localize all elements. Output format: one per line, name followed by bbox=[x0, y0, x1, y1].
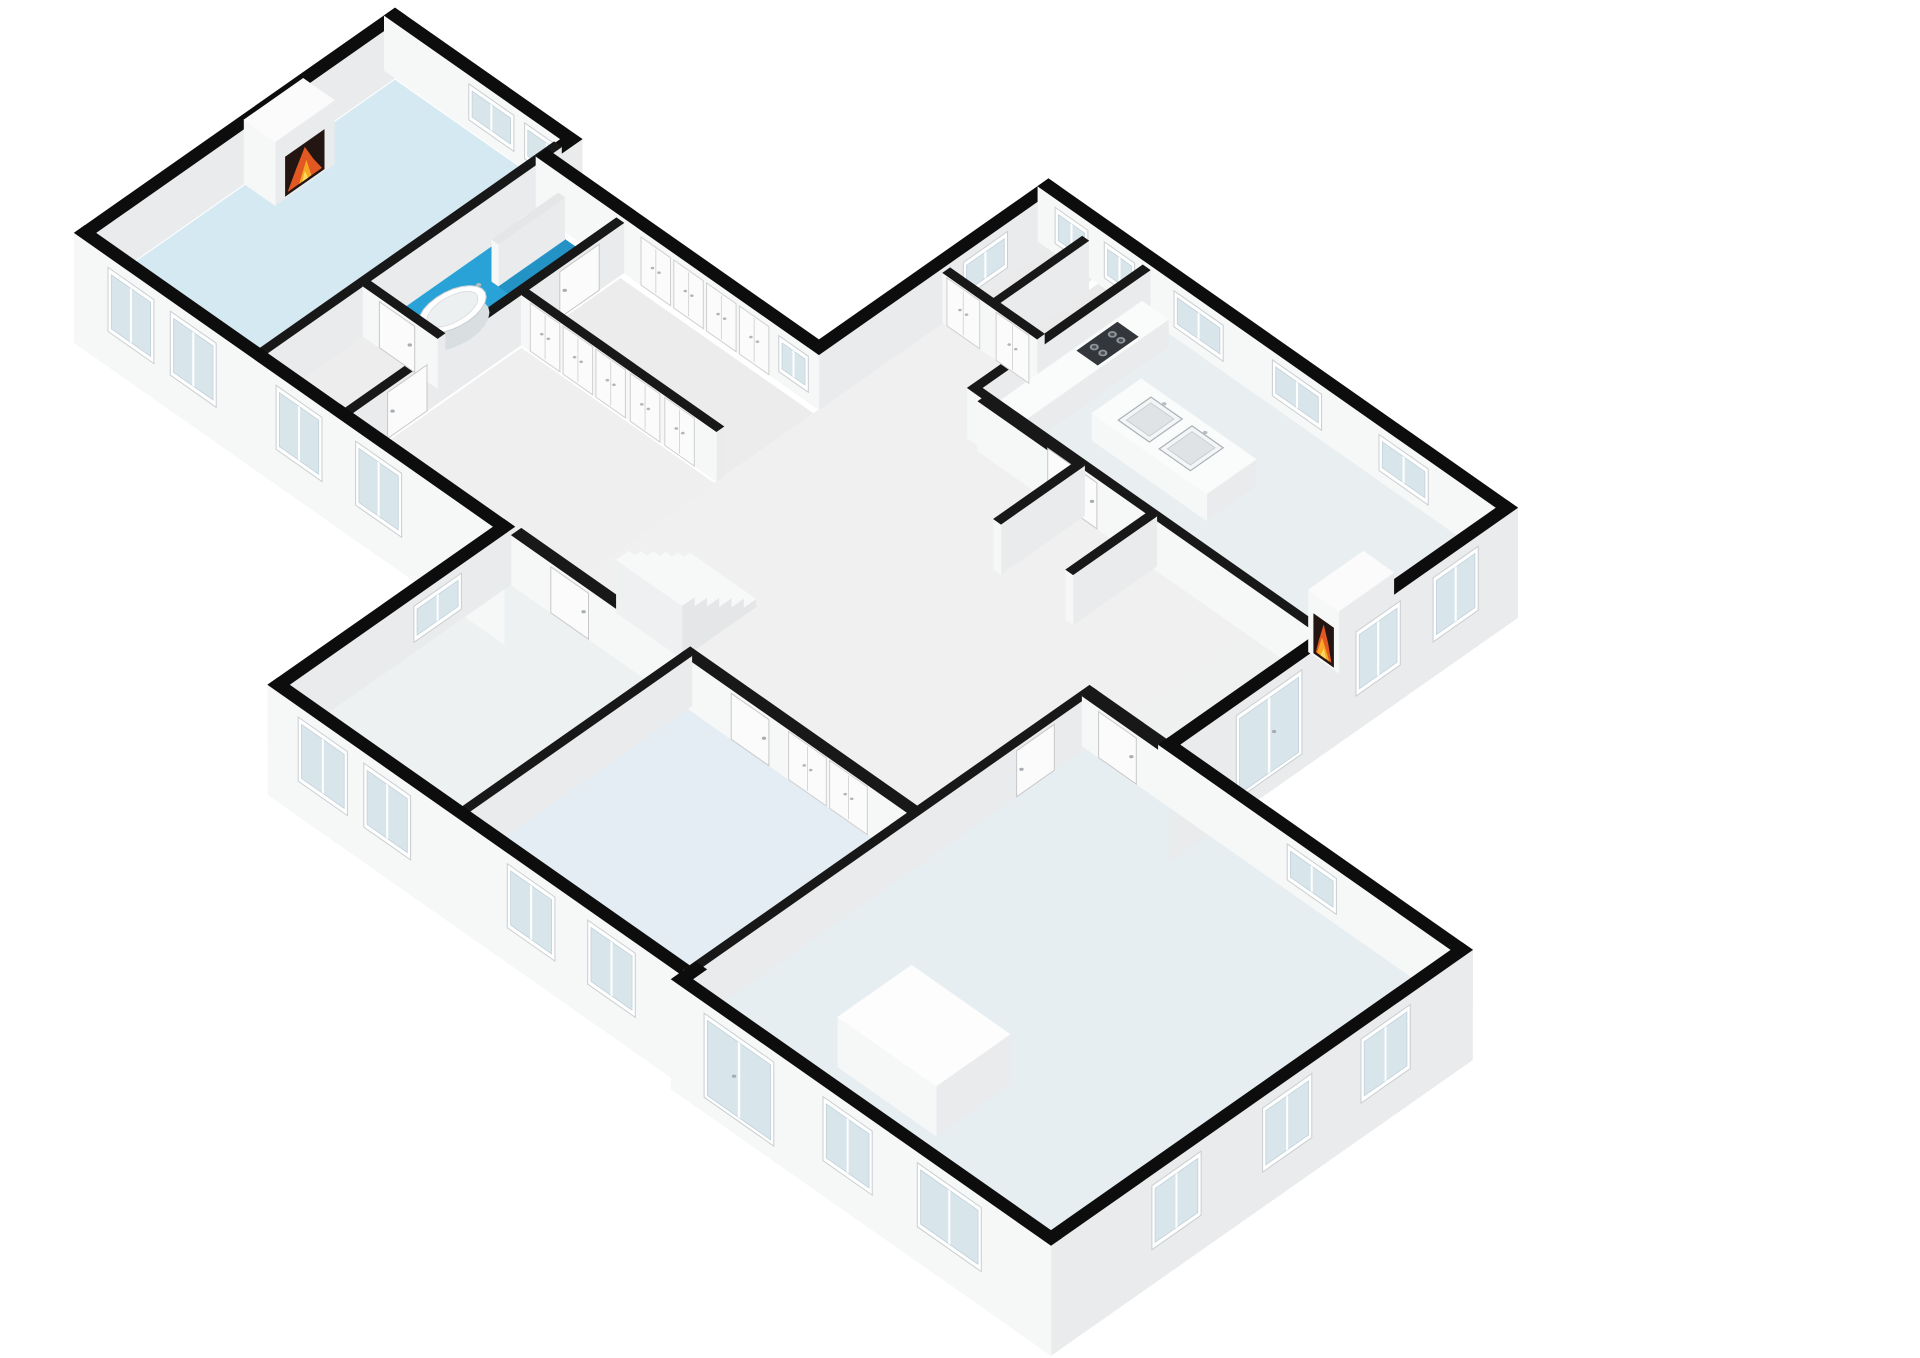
wardrobe-a1-handle bbox=[657, 271, 661, 274]
win-bottomleft-sw-1-mullion bbox=[322, 739, 324, 794]
storage-door-1-handle bbox=[958, 309, 962, 312]
bathtub-faucet bbox=[476, 283, 481, 287]
storage-door-1-handle bbox=[965, 313, 969, 316]
door-lobby-handle bbox=[390, 409, 394, 412]
wardrobe-a2-handle bbox=[690, 294, 694, 297]
win-bottomleft-sw-2-mullion bbox=[386, 784, 388, 839]
frenchdoor-bedmain-sw-handle bbox=[732, 1075, 736, 1078]
win-bedmain-se-3-mullion bbox=[1176, 1173, 1178, 1228]
win-kitchen-se-2-mullion bbox=[1377, 621, 1379, 676]
glassdoor-kitchen-se-divider bbox=[1268, 697, 1270, 774]
stove-4-burners-burner-center bbox=[1119, 339, 1123, 342]
floorplan-3d-svg bbox=[0, 0, 1920, 1358]
win-storage-w-mullion bbox=[984, 251, 986, 278]
stove-4-burners-burner-center bbox=[1092, 345, 1096, 348]
staircase-tread-face-se bbox=[694, 598, 706, 651]
door-living-handle bbox=[563, 289, 567, 292]
wardrobe-a1-handle bbox=[651, 267, 655, 270]
wardrobe-b2-handle bbox=[573, 356, 577, 359]
wardrobe-b3-handle bbox=[606, 379, 610, 382]
wardrobe-b3-divider bbox=[610, 361, 611, 406]
wardrobe-a2-handle bbox=[683, 290, 687, 293]
wall-int-hall-stub-2-face-sw bbox=[994, 519, 1001, 574]
island-sink-2-faucet bbox=[1203, 431, 1208, 434]
win-corridor-ne-mullion bbox=[793, 350, 795, 377]
win-bedmain-sw-2-mullion bbox=[948, 1190, 950, 1245]
win-living-sw-2-mullion bbox=[192, 332, 194, 387]
win-bedmain-se-2-mullion bbox=[1286, 1095, 1288, 1150]
door-bedroom-main-w-handle bbox=[1019, 768, 1023, 771]
wardrobe-b1-handle bbox=[540, 333, 544, 336]
door-kitchen-handle bbox=[1090, 500, 1094, 503]
wall-int-kitchen-nw-face-sw bbox=[967, 388, 974, 443]
storage-door-2-handle bbox=[1007, 343, 1011, 346]
wardrobe-b1-divider bbox=[545, 315, 546, 360]
door-bathroom-handle bbox=[408, 343, 412, 346]
closet-bedmid-1-divider bbox=[807, 746, 808, 791]
win-bedmain-se-1-mullion bbox=[1385, 1026, 1387, 1081]
door-room-bottom-left-handle bbox=[581, 610, 585, 613]
win-bedmid-sw-2-mullion bbox=[611, 941, 613, 996]
win-kitchen-se-1-mullion bbox=[1455, 566, 1457, 621]
wall-ext-main-nw-face-sw bbox=[808, 347, 819, 410]
win-kitchen-ne-2-mullion bbox=[1296, 381, 1298, 408]
closet-bedmid-2-divider bbox=[848, 775, 849, 820]
wardrobe-a3-handle bbox=[723, 317, 727, 320]
stove-4-burners-burner-center bbox=[1101, 351, 1105, 354]
wardrobe-b1-handle bbox=[547, 337, 551, 340]
win-entry-sw-mullion bbox=[378, 462, 380, 517]
wardrobe-b4-handle bbox=[647, 408, 651, 411]
wardrobe-a1-divider bbox=[655, 249, 656, 294]
win-bedmain-ne-mullion bbox=[1311, 866, 1313, 893]
wardrobe-b2-divider bbox=[577, 338, 578, 383]
wall-int-corr-hall-face-se bbox=[716, 427, 723, 482]
win-kitchen-ne-3-mullion bbox=[1403, 456, 1405, 483]
closet-bedmid-2-handle bbox=[850, 797, 854, 800]
storage-door-2-handle bbox=[1014, 348, 1018, 351]
wardrobe-b5-divider bbox=[679, 409, 680, 454]
closet-bedmid-1-handle bbox=[802, 764, 806, 767]
wardrobe-b2-handle bbox=[579, 360, 583, 363]
wardrobe-a4-handle bbox=[749, 336, 753, 339]
door-bedroom-middle-handle bbox=[762, 737, 766, 740]
wardrobe-a3-divider bbox=[721, 295, 722, 340]
storage-door-1-divider bbox=[963, 291, 964, 336]
wardrobe-a4-handle bbox=[756, 340, 760, 343]
wardrobe-b5-handle bbox=[674, 427, 678, 430]
floorplan-canvas bbox=[0, 0, 1920, 1358]
stove-4-burners-burner-center bbox=[1110, 333, 1114, 336]
wardrobe-a4-divider bbox=[754, 318, 755, 363]
wardrobe-b5-handle bbox=[681, 432, 685, 435]
wardrobe-a2-divider bbox=[688, 272, 689, 317]
wardrobe-b4-divider bbox=[645, 385, 646, 430]
wall-ext-bedroom-main-sw-face-se bbox=[1051, 1238, 1062, 1355]
island-sink-1-faucet bbox=[1162, 402, 1167, 405]
frenchdoor-bedmain-sw-divider bbox=[738, 1042, 740, 1119]
win-living-sw-1-mullion bbox=[130, 288, 132, 343]
wardrobe-a3-handle bbox=[716, 313, 720, 316]
wardrobe-b3-handle bbox=[612, 383, 616, 386]
win-kitchen-ne-1-mullion bbox=[1198, 312, 1200, 339]
win-living-ne-1-mullion bbox=[490, 104, 492, 131]
closet-bedmid-1-handle bbox=[809, 769, 813, 772]
wall-int-shower-partition-face-sw bbox=[492, 240, 499, 287]
win-bedmain-sw-1-mullion bbox=[847, 1118, 849, 1173]
door-bedroom-main-n-handle bbox=[1129, 755, 1133, 758]
wall-int-hall-stub-3-face-sw bbox=[1066, 570, 1073, 625]
win-ne-storage2-mullion bbox=[1119, 257, 1121, 284]
wall-int-bath-lobby-face-se bbox=[438, 333, 445, 388]
closet-bedmid-2-handle bbox=[843, 793, 847, 796]
wardrobe-b4-handle bbox=[640, 403, 644, 406]
win-bottomleft-w-mullion bbox=[437, 594, 439, 621]
win-bedmid-sw-1-mullion bbox=[530, 885, 532, 940]
storage-door-2-divider bbox=[1012, 326, 1013, 371]
win-bath-sw-mullion bbox=[298, 406, 300, 461]
glassdoor-kitchen-se-handle bbox=[1272, 730, 1276, 733]
